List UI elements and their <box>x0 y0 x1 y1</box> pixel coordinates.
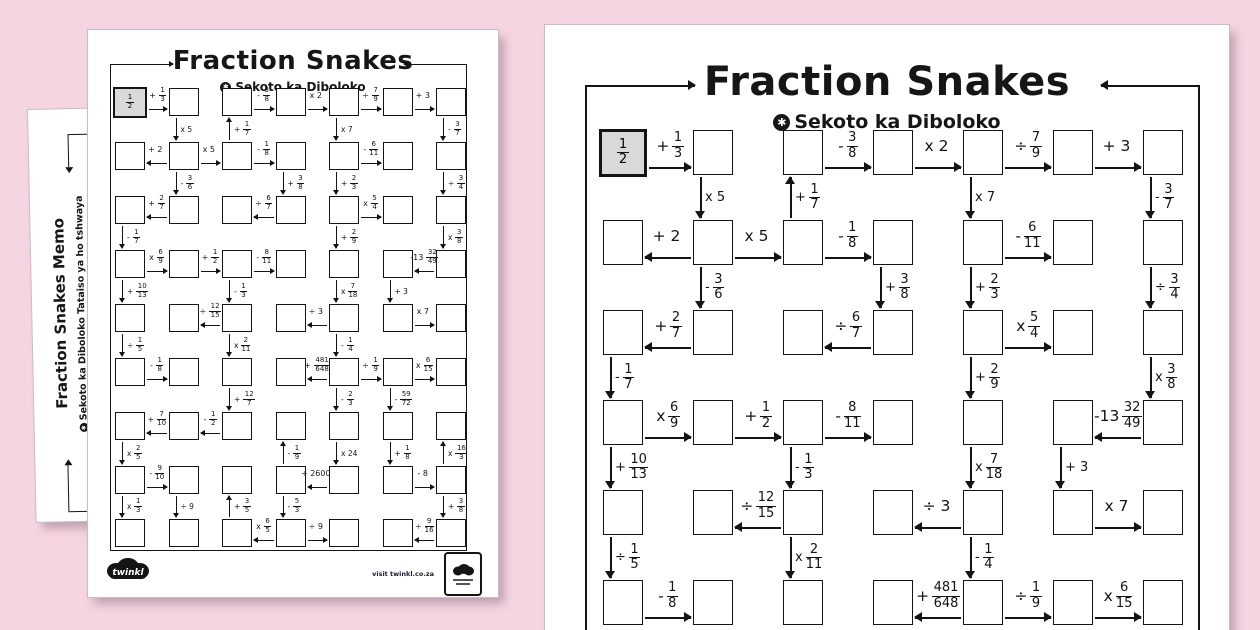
operation-label: x69 <box>645 403 691 429</box>
arrow-head <box>333 190 339 195</box>
operation-label: +23 <box>341 172 358 194</box>
operation-label: -811 <box>825 403 871 429</box>
operation-label: +12 <box>201 250 221 264</box>
arrow-head <box>226 352 232 357</box>
arrow-head <box>270 160 275 166</box>
answer-box <box>276 196 306 224</box>
operation-label: +1013 <box>615 447 648 488</box>
answer-box <box>276 358 306 386</box>
arrow-head <box>216 268 221 274</box>
arrow-head <box>785 176 795 184</box>
operation-label: x615 <box>415 358 435 372</box>
answer-box <box>329 519 359 547</box>
arrow-head <box>333 352 339 357</box>
operation-label: x 2 <box>915 133 961 159</box>
arrow-head <box>914 522 922 532</box>
arrow-head <box>1100 80 1108 90</box>
answer-box <box>169 304 199 332</box>
answer-box <box>169 196 199 224</box>
answer-box <box>436 358 466 386</box>
arrow-head <box>414 268 419 274</box>
operation-label: x38 <box>448 226 463 248</box>
snake-path-line <box>110 64 173 65</box>
arrow-head <box>440 136 446 141</box>
arrow-head <box>965 301 975 309</box>
worksheet-page-preview-large[interactable]: Fraction Snakes ✱Sekoto ka Diboloko 12+1… <box>545 25 1229 630</box>
answer-box <box>436 250 466 278</box>
arrow-head <box>173 513 179 518</box>
answer-box <box>783 580 823 625</box>
arrow-head <box>695 211 705 219</box>
arrow-head <box>333 298 339 303</box>
answer-box <box>873 490 913 535</box>
operation-label: +12 <box>735 403 781 429</box>
arrow-head <box>1134 162 1142 172</box>
answer-box <box>329 304 359 332</box>
arrow-head <box>954 162 962 172</box>
arrow-head <box>270 106 275 112</box>
arrow-head <box>1044 342 1052 352</box>
arrow-head <box>163 268 168 274</box>
operation-label: x718 <box>975 447 1002 488</box>
answer-box <box>329 88 359 116</box>
operation-label: +27 <box>147 196 167 210</box>
operation-label: ÷34 <box>448 172 465 194</box>
operation-label: +17 <box>795 177 820 218</box>
arrow-head <box>440 513 446 518</box>
arrow-head <box>1094 432 1102 442</box>
arrow-head <box>875 301 885 309</box>
answer-box <box>115 304 145 332</box>
answer-box <box>383 142 413 170</box>
answer-box <box>383 88 413 116</box>
operation-label: +18 <box>395 442 412 464</box>
start-box: 12 <box>113 87 147 118</box>
snake-path-line <box>585 85 587 630</box>
arrow-head <box>644 342 652 352</box>
translated-resource-icon: ✱ <box>773 114 790 131</box>
answer-box <box>1053 490 1093 535</box>
operation-label: ÷19 <box>361 358 381 372</box>
answer-box <box>383 304 413 332</box>
answer-box <box>115 412 145 440</box>
arrow-head <box>605 571 615 579</box>
operation-label: -36 <box>181 172 194 194</box>
answer-box <box>115 196 145 224</box>
snake-path-line <box>1101 85 1198 87</box>
answer-box <box>222 250 252 278</box>
answer-box <box>436 466 466 494</box>
answer-box <box>383 250 413 278</box>
operation-label: x211 <box>795 537 822 578</box>
arrow-head <box>785 571 795 579</box>
operation-label: ÷67 <box>825 313 871 339</box>
operation-label: ÷1215 <box>201 304 221 318</box>
operation-label: x25 <box>127 442 142 464</box>
operation-label: x54 <box>1005 313 1051 339</box>
operation-label: -14 <box>975 537 994 578</box>
operation-label: ÷79 <box>1005 133 1051 159</box>
answer-box <box>693 130 733 175</box>
snake-path-line <box>466 64 467 550</box>
operation-label: ÷ 9 <box>181 496 197 517</box>
answer-box <box>276 304 306 332</box>
operation-label: x 5 <box>735 223 781 249</box>
arrow-head <box>965 211 975 219</box>
operation-label: x 2 <box>308 88 328 102</box>
operation-label: -910 <box>147 466 167 480</box>
arrow-head <box>440 441 446 446</box>
operation-label: -611 <box>1005 223 1051 249</box>
arrow-head <box>173 136 179 141</box>
answer-box <box>1143 310 1183 355</box>
operation-label: -18 <box>825 223 871 249</box>
svg-text:twinkl: twinkl <box>112 568 144 578</box>
operation-label: -36 <box>705 267 724 308</box>
operation-label: ÷15 <box>127 334 144 356</box>
answer-box <box>169 358 199 386</box>
answer-box <box>603 310 643 355</box>
answer-box <box>963 400 1003 445</box>
arrow-head <box>377 106 382 112</box>
operation-label: -13 <box>234 280 247 302</box>
arrow-head <box>226 406 232 411</box>
answer-box <box>1143 400 1183 445</box>
arrow-head <box>307 484 312 490</box>
operation-label: x 24 <box>341 442 360 464</box>
operation-label: -611 <box>361 142 381 156</box>
operation-label: +17 <box>234 118 251 140</box>
operation-label: x211 <box>234 334 250 356</box>
answer-box <box>693 220 733 265</box>
answer-box <box>222 358 252 386</box>
answer-box <box>276 519 306 547</box>
answer-box <box>329 196 359 224</box>
operation-label: + 2 <box>645 223 691 249</box>
answer-box <box>383 358 413 386</box>
arrow-head <box>403 61 408 67</box>
answer-box <box>276 250 306 278</box>
arrow-head <box>253 214 258 220</box>
arrow-head <box>430 322 435 328</box>
arrow-head <box>965 391 975 399</box>
snake-path-line <box>404 64 467 65</box>
answer-box <box>963 220 1003 265</box>
arrow-head <box>684 432 692 442</box>
answer-box <box>873 310 913 355</box>
operation-label: +29 <box>975 357 1000 398</box>
operation-label: +38 <box>448 496 465 517</box>
answer-box <box>603 400 643 445</box>
answer-box <box>436 304 466 332</box>
snake-path-line <box>110 550 467 551</box>
operation-label: -19 <box>288 442 301 464</box>
answer-box <box>222 88 252 116</box>
arrow-head <box>280 190 286 195</box>
arrow-head <box>333 460 339 465</box>
operation-label: +27 <box>645 313 691 339</box>
visit-link[interactable]: visit twinkl.co.za <box>372 570 434 578</box>
answer-box <box>1053 310 1093 355</box>
answer-box <box>383 466 413 494</box>
answer-box <box>783 130 823 175</box>
arrow-head <box>430 484 435 490</box>
answer-box <box>115 250 145 278</box>
arrow-head <box>864 162 872 172</box>
arrow-head <box>695 301 705 309</box>
answer-box <box>115 466 145 494</box>
arrow-head <box>146 160 151 166</box>
answer-box <box>693 580 733 625</box>
operation-label: ÷34 <box>1155 267 1180 308</box>
snake-path-line <box>1198 85 1200 630</box>
answer-box <box>783 220 823 265</box>
answer-box <box>693 400 733 445</box>
arrow-head <box>1044 252 1052 262</box>
arrow-head <box>774 252 782 262</box>
answer-box <box>873 400 913 445</box>
arrow-head <box>280 513 286 518</box>
operation-label: -12 <box>201 412 221 426</box>
arrow-head <box>644 252 652 262</box>
arrow-head <box>387 406 393 411</box>
operation-label: -17 <box>127 226 140 248</box>
worksheet-title: Fraction Snakes <box>88 46 498 76</box>
operation-label: x69 <box>147 250 167 264</box>
answer-box <box>276 412 306 440</box>
operation-label: +35 <box>234 496 251 517</box>
answer-box <box>1143 490 1183 535</box>
arrow-head <box>173 190 179 195</box>
answer-box <box>169 88 199 116</box>
answer-box <box>963 310 1003 355</box>
answer-box <box>436 519 466 547</box>
arrow-head <box>387 298 393 303</box>
arrow-head <box>323 106 328 112</box>
answer-box <box>383 519 413 547</box>
answer-box <box>963 130 1003 175</box>
answer-box <box>329 250 359 278</box>
arrow-head <box>200 430 205 436</box>
operation-label: -811 <box>254 250 274 264</box>
arrow-head <box>307 376 312 382</box>
arrow-head <box>605 481 615 489</box>
answer-box <box>169 412 199 440</box>
operation-label: -23 <box>341 388 354 410</box>
operation-label: x 7 <box>975 177 998 218</box>
arrow-head <box>1145 301 1155 309</box>
operation-label: +38 <box>885 267 910 308</box>
answer-box <box>222 196 252 224</box>
arrow-head <box>1145 391 1155 399</box>
answer-box <box>963 490 1003 535</box>
answer-box <box>693 310 733 355</box>
arrow-head <box>333 244 339 249</box>
arrow-head <box>688 80 696 90</box>
operation-label: +23 <box>975 267 1000 308</box>
operation-label: +127 <box>234 388 255 410</box>
answer-box <box>1143 130 1183 175</box>
operation-label: ÷ 3 <box>915 493 961 519</box>
operation-label: -5972 <box>395 388 413 410</box>
arrow-head <box>440 244 446 249</box>
answer-box <box>603 490 643 535</box>
answer-box <box>603 220 643 265</box>
arrow-head <box>200 322 205 328</box>
operation-label: +38 <box>288 172 305 194</box>
memo-page-title: Fraction Snakes Memo <box>49 183 74 443</box>
arrow-head <box>226 298 232 303</box>
arrow-head <box>377 376 382 382</box>
arrow-head <box>1055 481 1065 489</box>
operation-label: x65 <box>254 519 274 533</box>
answer-box <box>783 400 823 445</box>
arrow-head <box>146 214 151 220</box>
operation-label: x 5 <box>201 142 221 156</box>
operation-label: +710 <box>147 412 167 426</box>
operation-label: -14 <box>341 334 354 356</box>
answer-box <box>169 250 199 278</box>
operation-label: + 3 <box>415 88 435 102</box>
operation-label: -37 <box>448 118 461 140</box>
operation-label: ÷1215 <box>735 493 781 519</box>
operation-label: -18 <box>147 358 167 372</box>
start-box: 12 <box>599 129 647 177</box>
operation-label: x54 <box>361 196 381 210</box>
answer-box <box>115 142 145 170</box>
operation-label: x13 <box>127 496 142 517</box>
answer-box <box>276 88 306 116</box>
operation-label: +481648 <box>915 583 961 609</box>
answer-box <box>436 196 466 224</box>
answer-box <box>169 142 199 170</box>
operation-label: - 8 <box>415 466 435 480</box>
operation-label: x 7 <box>415 304 435 318</box>
operation-label: +29 <box>341 226 358 248</box>
snake-path-line <box>110 64 111 550</box>
operation-label: x 7 <box>1095 493 1141 519</box>
operation-label: x718 <box>341 280 357 302</box>
answer-box <box>963 580 1003 625</box>
operation-label: -133249 <box>415 250 435 264</box>
answer-box <box>783 490 823 535</box>
arrow-head <box>1134 522 1142 532</box>
answer-box <box>873 220 913 265</box>
worksheet-page-preview-small[interactable]: Fraction Snakes ✱Sekoto ka Diboloko 12+1… <box>88 30 498 597</box>
arrow-head <box>146 430 151 436</box>
answer-box <box>329 412 359 440</box>
arrow-head <box>965 481 975 489</box>
answer-box <box>873 580 913 625</box>
arrow-head <box>605 391 615 399</box>
operation-label: ÷19 <box>1005 583 1051 609</box>
answer-box <box>436 412 466 440</box>
arrow-head <box>323 537 328 543</box>
operation-label: x615 <box>1095 583 1141 609</box>
arrow-head <box>163 376 168 382</box>
arrow-head <box>333 136 339 141</box>
answer-box <box>693 490 733 535</box>
operation-label: x163 <box>448 442 467 464</box>
operation-label: ÷67 <box>254 196 274 210</box>
arrow-head <box>163 106 168 112</box>
snake-path-line <box>585 85 695 87</box>
operation-label: ÷ 2600 <box>308 466 328 480</box>
answer-box <box>603 580 643 625</box>
arrow-head <box>684 162 692 172</box>
arrow-head <box>270 268 275 274</box>
operation-label: -53 <box>288 496 301 517</box>
arrow-head <box>387 460 393 465</box>
arrow-head <box>119 298 125 303</box>
arrow-head <box>430 376 435 382</box>
answer-box <box>873 130 913 175</box>
arrow-head <box>119 460 125 465</box>
answer-box <box>1053 220 1093 265</box>
arrow-head <box>119 352 125 357</box>
answer-box <box>222 519 252 547</box>
arrow-head <box>914 612 922 622</box>
answer-box <box>276 142 306 170</box>
operation-label: x 7 <box>341 118 356 140</box>
operation-label: x 5 <box>181 118 196 140</box>
arrow-head <box>216 160 221 166</box>
answer-box <box>1143 580 1183 625</box>
answer-box <box>329 358 359 386</box>
operation-label: -38 <box>825 133 871 159</box>
operation-label: ÷15 <box>615 537 640 578</box>
arrow-head <box>785 481 795 489</box>
arrow-head <box>824 342 832 352</box>
operation-label: -37 <box>1155 177 1174 218</box>
arrow-head <box>684 612 692 622</box>
arrow-head <box>169 61 174 67</box>
operation-label: x38 <box>1155 357 1177 398</box>
operation-label: -17 <box>615 357 634 398</box>
arrow-head <box>280 441 286 446</box>
answer-box <box>1143 220 1183 265</box>
worksheet-title: Fraction Snakes <box>545 59 1229 105</box>
operation-label: -18 <box>254 142 274 156</box>
answer-box <box>222 142 252 170</box>
answer-box <box>436 88 466 116</box>
answer-box <box>329 466 359 494</box>
arrow-head <box>119 513 125 518</box>
answer-box <box>115 358 145 386</box>
answer-box <box>222 304 252 332</box>
operation-label: + 3 <box>1065 447 1091 488</box>
arrow-head <box>226 117 232 122</box>
arrow-head <box>163 484 168 490</box>
answer-box <box>436 142 466 170</box>
arrow-head <box>864 432 872 442</box>
answer-box <box>222 466 252 494</box>
arrow-head <box>377 160 382 166</box>
operation-label: x 5 <box>705 177 728 218</box>
arrow-head <box>1044 162 1052 172</box>
operation-label: +13 <box>149 88 167 102</box>
twinkl-quality-badge <box>444 552 482 596</box>
answer-box <box>329 142 359 170</box>
answer-box <box>222 412 252 440</box>
arrow-head <box>333 406 339 411</box>
arrow-head-up <box>64 459 72 465</box>
operation-label: +1013 <box>127 280 148 302</box>
answer-box <box>1053 400 1093 445</box>
answer-box <box>783 310 823 355</box>
arrow-head <box>774 432 782 442</box>
arrow-head <box>430 106 435 112</box>
